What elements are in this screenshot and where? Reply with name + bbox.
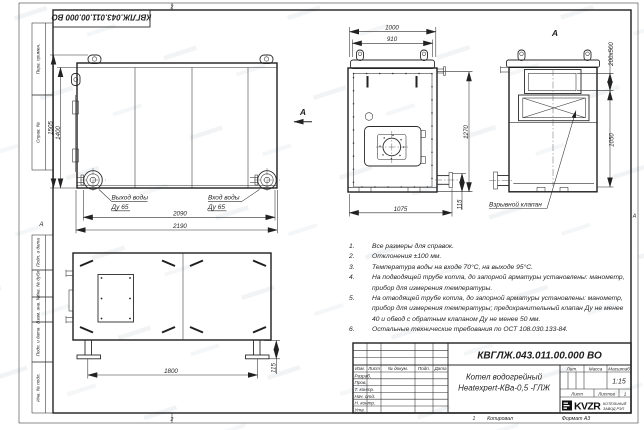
note-number: 4. (346, 273, 372, 294)
dim-1800: 1800 (164, 368, 178, 375)
outlet-label: Выход воды (112, 194, 149, 202)
tb-col-data: Дата (433, 366, 447, 371)
kvzr-logo-sub-1: КОТЕЛЬНЫЙ (603, 402, 627, 406)
tb-col-list: Лист (367, 366, 380, 371)
note-item: 4.На подводящей трубе котла, до запорной… (346, 273, 630, 294)
margin-label-sprav-no: Справ. № (36, 122, 41, 143)
dim-1075: 1075 (394, 206, 408, 213)
margin-label-perv-primen: Перв. примен. (36, 44, 41, 75)
dim-1050: 1050 (608, 133, 615, 147)
watermark (0, 0, 644, 430)
tb-row-prov: Пров. (355, 380, 367, 385)
inlet-label: Вход воды (208, 194, 240, 202)
tb-lit-label: Лит. (566, 366, 578, 371)
copied-label: Копировал (487, 416, 513, 422)
note-number: 5. (346, 294, 372, 325)
note-number: 6. (346, 325, 372, 335)
note-text: Все размеры для справок. (372, 242, 630, 252)
tb-scale-label: Масштаб (608, 366, 630, 371)
zone-letter-left: А (38, 221, 43, 228)
tb-row-t-kontr: Т. контр. (355, 387, 375, 392)
note-text: Отклонения ±100 мм. (372, 252, 630, 262)
margin-label-inv-dubl: Инв. № дубл. (36, 269, 41, 297)
inlet-dn-label: Ду 65 (207, 204, 225, 211)
tb-doc-number: КВГЛЖ.043.011.00.000 ВО (477, 351, 602, 362)
zone-letter-right: А (632, 214, 637, 220)
note-text: На отводящей трубе котла, до запорной ар… (372, 294, 630, 325)
tb-sheets-label: Листов (597, 391, 615, 396)
tb-row-utv: Утв. (355, 407, 365, 412)
margin-label-podp-data-1: Подп. и дата (36, 238, 41, 267)
dim-1270: 1270 (463, 125, 470, 139)
tb-row-razrab: Разраб. (355, 373, 372, 378)
note-text: Температура воды на входе 70°С, на выход… (372, 263, 630, 273)
dim-200x500: 200х500 (608, 42, 615, 67)
kvzr-logo-text: KVZR (574, 401, 601, 413)
fold-mark-bottom: 2 (170, 417, 174, 423)
note-number: 3. (346, 263, 372, 273)
dim-1505: 1505 (48, 121, 55, 135)
drawing-sheet: 2 2 А А Перв. примен. Справ. № Подп. и д… (0, 0, 644, 430)
dim-1000: 1000 (385, 24, 399, 31)
note-text: На подводящей трубе котла, до запорной а… (372, 273, 630, 294)
note-item: 1.Все размеры для справок. (346, 242, 630, 252)
fold-mark-top: 2 (170, 4, 174, 10)
margin-label-inv-podl: Инв. № подл. (36, 373, 41, 402)
note-item: 2.Отклонения ±100 мм. (346, 252, 630, 262)
top-stamp-doc-number: КВГЛЖ.043.011.00.000 ВО (51, 12, 151, 21)
tb-product-name-1: Котел водогрейный (466, 373, 543, 382)
tb-col-podp: Подп. (418, 366, 430, 371)
dim-115-front: 115 (456, 199, 463, 209)
dim-1400: 1400 (55, 126, 62, 140)
tb-mass-label: Масса (589, 366, 603, 371)
note-item: 3.Температура воды на входе 70°С, на вых… (346, 263, 630, 273)
dim-2190: 2190 (172, 223, 187, 230)
note-number: 2. (346, 252, 372, 262)
tb-col-izm: Изм. (355, 366, 365, 371)
tb-sheets-value: 1 (624, 391, 627, 396)
tb-scale-value: 1:15 (612, 379, 626, 386)
explosion-valve-label: Взрывной клапан (489, 201, 542, 209)
fold-mark-bottom-right: 1 (473, 416, 476, 422)
view-a-label: А (551, 28, 558, 38)
format-label: Формат А3 (562, 416, 590, 422)
note-item: 5.На отводящей трубе котла, до запорной … (346, 294, 630, 325)
tb-product-name-2: Heatexpert-КВа-0,5 -ГЛЖ (458, 384, 551, 393)
dim-115-bottom: 115 (270, 363, 277, 373)
tb-col-dokum: № докум. (388, 366, 408, 371)
tb-row-nach-otd: Нач. отд. (355, 394, 376, 399)
tb-sheet-label: Лист (570, 391, 583, 396)
technical-notes: 1.Все размеры для справок. 2.Отклонения … (346, 242, 630, 336)
note-number: 1. (346, 242, 372, 252)
dim-2090: 2090 (172, 210, 187, 217)
tb-row-n-kontr: Н. контр. (355, 401, 376, 406)
note-text: Остальные технические требования по ОСТ … (372, 325, 630, 335)
outlet-dn-label: Ду 65 (111, 204, 129, 211)
view-arrow-letter: А (299, 107, 306, 117)
dim-910: 910 (387, 36, 398, 43)
margin-label-vzam-inv: Взам. инв. № (36, 295, 41, 323)
kvzr-logo-sub-2: ЗАВОД РЭП (603, 407, 624, 411)
drawing-canvas: 2 2 А А Перв. примен. Справ. № Подп. и д… (0, 0, 644, 430)
margin-label-podp-data-2: Подп. и дата (36, 327, 41, 356)
note-item: 6.Остальные технические требования по ОС… (346, 325, 630, 335)
